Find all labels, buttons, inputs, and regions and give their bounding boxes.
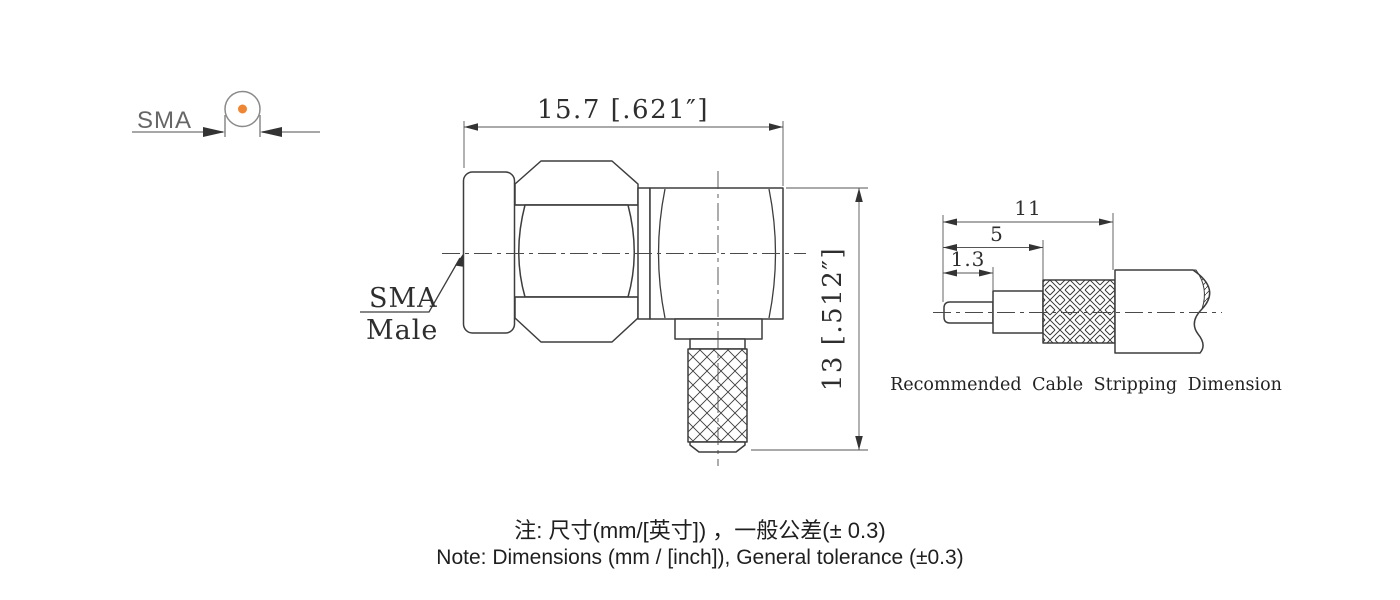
hex-nut-bottom-flat [515,297,638,342]
hex-nut-middle-flat [519,205,635,297]
main-connector-view: 15.7 [.621″] 13 [.512″] SMA Male [360,95,868,466]
height-arrow-bottom-icon [855,436,863,450]
total-dim-text: 11 [1014,196,1041,220]
drawing-page: SMA [0,0,1400,600]
total-arrow-right-icon [1099,219,1113,226]
part-label-line1: SMA [369,283,438,314]
part-label-line2: Male [366,315,438,346]
drawing-notes: 注: 尺寸(mm/[英寸]) ，一般公差(± 0.3) Note: Dimens… [0,517,1400,571]
braid-texture [1043,280,1115,343]
crimp-end-cap [690,442,745,452]
hex-nut-top-flat [515,161,638,205]
note-line-zh: 注: 尺寸(mm/[英寸]) ，一般公差(± 0.3) [0,517,1400,545]
height-dim-text: 13 [.512″] [818,247,848,391]
width-dim-text: 15.7 [.621″] [537,95,709,125]
total-arrow-left-icon [943,219,957,226]
rear-step-2 [690,339,745,349]
dielectric [993,291,1043,333]
sma-interface-symbol: SMA [132,92,320,138]
center-pin-dot-icon [238,105,247,114]
height-arrow-top-icon [855,188,863,202]
stripping-caption: Recommended Cable Stripping Dimension [890,375,1282,395]
interface-barrel [464,172,515,333]
knurl-texture [688,349,747,442]
width-arrow-left-icon [464,123,478,131]
technical-drawing-canvas: SMA [0,0,1400,600]
symbol-arrow-right-icon [203,127,225,137]
note-line-en: Note: Dimensions (mm / [inch]), General … [0,545,1400,571]
part-label: SMA Male [360,253,469,346]
cable-jacket [1115,270,1210,353]
rear-step-1 [675,319,762,339]
dielectric-dim-text: 5 [990,222,1004,246]
conductor-dim-text: 1.3 [951,247,986,271]
width-arrow-right-icon [769,123,783,131]
dimension-conductor-strip: 1.3 [943,247,993,277]
sma-symbol-label: SMA [137,107,192,134]
symbol-arrow-left-icon [260,127,282,137]
dielectric-arrow-right-icon [1029,244,1043,251]
dimension-total-strip: 11 [943,196,1113,226]
cable-stripping-view: 11 5 1.3 Recommended Cable Stripping Dim… [890,196,1282,395]
